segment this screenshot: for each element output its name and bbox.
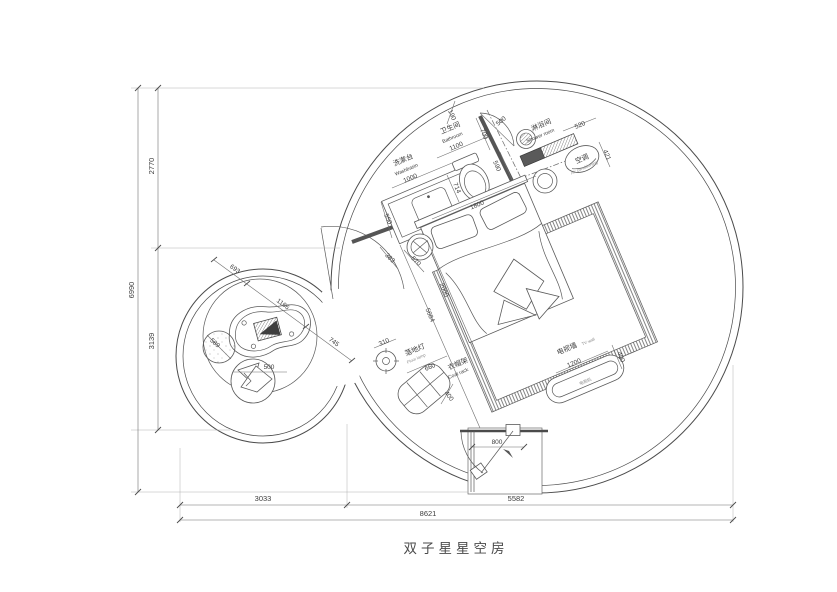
kidney-table (222, 294, 316, 363)
washbasin-dim: 1000 (402, 172, 418, 184)
floor-lamp-dim: 310 (378, 337, 391, 348)
dim-520: 520 (574, 120, 587, 131)
dim-693: 693 (228, 263, 241, 275)
bedside-table (407, 234, 433, 260)
coat-rack-dim-d: 400 (443, 390, 455, 403)
dim-383: 383 (383, 252, 396, 265)
door-hinge-block (506, 425, 520, 436)
dim-500-chair: 500 (264, 364, 275, 371)
pouf (203, 331, 235, 363)
floor-plan-drawing: 洗漱台 Washbasin 1000 卫生间 Bathroom 1100 淋浴间… (0, 0, 837, 592)
dim-421: 421 (601, 149, 612, 162)
dim-3139: 3139 (147, 333, 156, 350)
passage-door-leaf (321, 228, 333, 299)
dim-800: 800 (492, 439, 503, 446)
dim-6990: 6990 (127, 282, 136, 299)
round-stool-icon (533, 169, 557, 193)
dim-190: 190 (446, 109, 457, 122)
overall-dimensions (131, 85, 736, 523)
bathroom-dim: 1100 (449, 141, 465, 153)
dim-5684: 5684 (423, 307, 435, 323)
tv-wall-label-en: TV wall (581, 336, 596, 346)
floor-plan-canvas: 洗漱台 Washbasin 1000 卫生间 Bathroom 1100 淋浴间… (0, 0, 837, 592)
plan-title: 双子星星空房 (404, 541, 509, 556)
floor-lamp-icon (373, 348, 399, 374)
dim-8621: 8621 (420, 509, 437, 518)
passage-opening (322, 286, 360, 388)
dim-3033: 3033 (255, 494, 272, 503)
dim-5582: 5582 (508, 494, 525, 503)
tv-wall-label-cn: 电视墙 (555, 340, 578, 356)
entry-vestibule (460, 425, 548, 495)
dim-2770: 2770 (147, 158, 156, 175)
